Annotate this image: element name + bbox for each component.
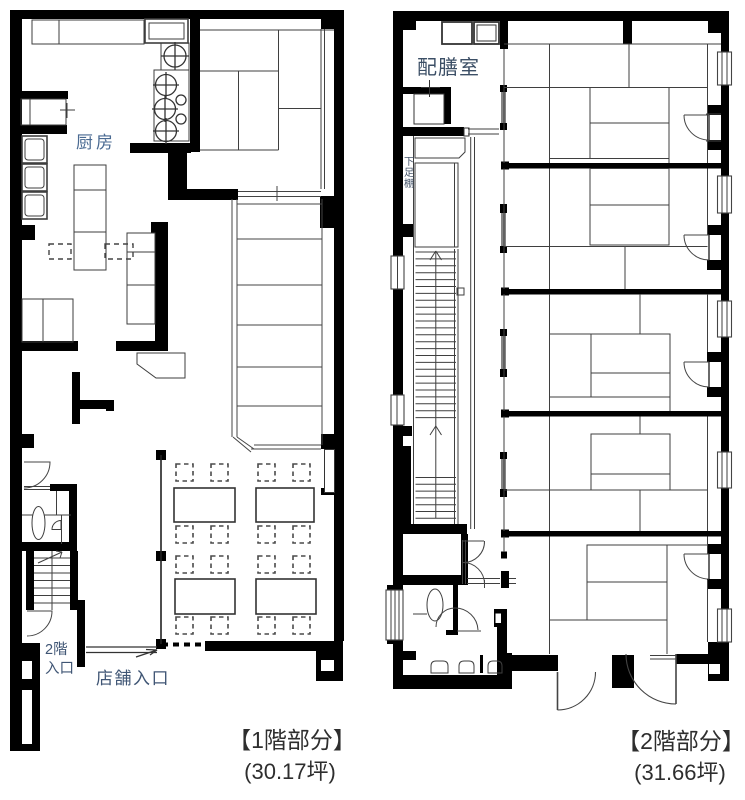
svg-text:下: 下 [404,157,414,168]
svg-text:(30.17坪): (30.17坪) [244,759,336,784]
svg-text:(31.66坪): (31.66坪) [634,760,726,785]
svg-text:2階: 2階 [45,641,68,658]
svg-text:入口: 入口 [45,661,74,677]
svg-text:【1階部分】: 【1階部分】 [228,727,356,753]
svg-text:厨房: 厨房 [76,133,116,152]
svg-text:足: 足 [404,167,414,179]
svg-text:店舗入口: 店舗入口 [96,669,170,688]
svg-text:配膳室: 配膳室 [417,56,480,79]
svg-text:【2階部分】: 【2階部分】 [617,728,745,754]
svg-text:棚: 棚 [404,177,414,190]
